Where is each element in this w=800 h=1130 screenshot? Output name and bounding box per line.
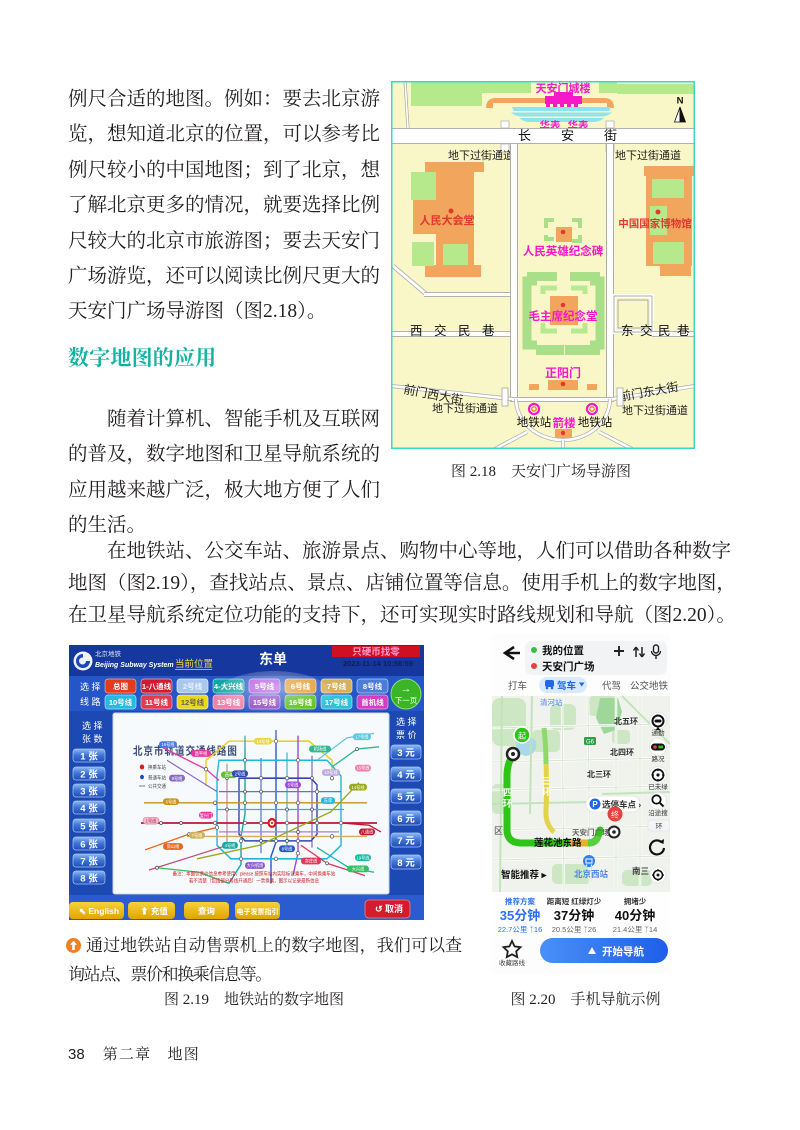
- svg-text:20.5公里 ᛉ26: 20.5公里 ᛉ26: [552, 925, 597, 934]
- svg-text:地下过街通道: 地下过街通道: [622, 403, 688, 417]
- svg-text:⬉ English: ⬉ English: [79, 906, 119, 916]
- svg-text:代驾: 代驾: [602, 681, 621, 692]
- svg-text:8号线: 8号线: [363, 681, 383, 691]
- svg-text:北四环: 北四环: [610, 747, 634, 757]
- svg-text:民: 民: [458, 324, 471, 338]
- svg-text:2 张: 2 张: [80, 769, 98, 781]
- svg-text:地铁站: 地铁站: [517, 415, 552, 429]
- svg-text:距离短 红绿灯少: 距离短 红绿灯少: [547, 896, 602, 906]
- svg-text:票 价: 票 价: [396, 730, 417, 740]
- svg-text:打车: 打车: [508, 680, 527, 692]
- svg-text:37分钟: 37分钟: [554, 908, 594, 923]
- svg-text:交: 交: [434, 323, 447, 338]
- svg-text:7号线: 7号线: [192, 832, 203, 839]
- svg-text:当前位置: 当前位置: [175, 658, 213, 670]
- svg-text:北京西站: 北京西站: [574, 869, 609, 879]
- svg-text:选 择: 选 择: [396, 716, 417, 727]
- svg-text:东单: 东单: [259, 651, 287, 667]
- svg-text:19号线: 19号线: [356, 854, 370, 861]
- svg-text:6号线: 6号线: [166, 798, 177, 805]
- svg-text:5 元: 5 元: [397, 792, 415, 803]
- svg-text:正阳门: 正阳门: [545, 365, 581, 380]
- svg-text:北京地铁: 北京地铁: [95, 649, 122, 658]
- svg-text:环: 环: [503, 799, 513, 810]
- svg-text:大兴线: 大兴线: [352, 865, 365, 872]
- svg-text:人民大会堂: 人民大会堂: [420, 213, 475, 227]
- svg-text:驾车: 驾车: [557, 680, 577, 692]
- svg-text:40分钟: 40分钟: [615, 908, 655, 923]
- svg-text:区: 区: [494, 826, 503, 836]
- svg-text:昌平线: 昌平线: [195, 750, 208, 757]
- svg-text:⬆ 充值: ⬆ 充值: [140, 906, 168, 916]
- svg-text:收藏路线: 收藏路线: [499, 958, 526, 967]
- svg-text:交: 交: [640, 323, 653, 338]
- svg-text:1号线: 1号线: [146, 817, 157, 824]
- svg-text:人民英雄纪念碑: 人民英雄纪念碑: [523, 244, 604, 258]
- svg-text:推荐方案: 推荐方案: [505, 896, 535, 906]
- svg-text:智能推荐 ▸: 智能推荐 ▸: [501, 869, 548, 881]
- svg-text:北三环: 北三环: [587, 769, 611, 779]
- svg-text:→: →: [401, 683, 412, 695]
- svg-text:6 元: 6 元: [397, 814, 415, 825]
- svg-text:开始导航: 开始导航: [602, 945, 644, 958]
- svg-text:10号线: 10号线: [109, 697, 133, 707]
- svg-text:8 元: 8 元: [397, 858, 415, 869]
- svg-text:大兴机场: 大兴机场: [247, 862, 264, 869]
- svg-text:16号线: 16号线: [161, 741, 175, 748]
- svg-text:7 张: 7 张: [80, 856, 98, 868]
- svg-text:电子发票指引: 电子发票指引: [237, 907, 279, 916]
- svg-text:1 张: 1 张: [80, 751, 98, 763]
- svg-text:8 张: 8 张: [80, 873, 98, 885]
- svg-text:只硬币找零: 只硬币找零: [352, 646, 400, 658]
- svg-text:亦庄线: 亦庄线: [305, 857, 318, 864]
- svg-text:中国国家博物馆: 中国国家博物馆: [618, 217, 692, 230]
- svg-text:通勤: 通勤: [652, 728, 666, 737]
- svg-text:查询: 查询: [198, 906, 216, 916]
- svg-text:地铁站: 地铁站: [578, 415, 613, 429]
- svg-text:公交地铁: 公交地铁: [630, 680, 669, 692]
- svg-text:天安门广场: 天安门广场: [542, 660, 595, 673]
- svg-text:东单: 东单: [324, 797, 333, 804]
- svg-text:东: 东: [621, 324, 634, 338]
- svg-text:天安门广场: 天安门广场: [572, 827, 610, 837]
- svg-text:环: 环: [542, 787, 551, 797]
- svg-text:2023-11-14 10:58:59: 2023-11-14 10:58:59: [343, 659, 413, 668]
- svg-text:我的位置: 我的位置: [542, 644, 584, 657]
- svg-text:9号线: 9号线: [172, 775, 183, 782]
- svg-text:清河站: 清河站: [540, 697, 563, 707]
- svg-text:2号线: 2号线: [183, 681, 203, 691]
- svg-text:复兴门: 复兴门: [200, 812, 213, 819]
- svg-text:房山线: 房山线: [167, 843, 180, 850]
- svg-text:北五环: 北五环: [614, 716, 638, 726]
- svg-text:已未绿: 已未绿: [648, 782, 668, 791]
- svg-text:15号线: 15号线: [356, 764, 370, 771]
- svg-text:机场线: 机场线: [314, 745, 327, 752]
- svg-text:1-八通线: 1-八通线: [142, 681, 172, 691]
- svg-text:环: 环: [656, 823, 663, 831]
- svg-text:毛主席纪念堂: 毛主席纪念堂: [529, 309, 598, 323]
- svg-text:3 元: 3 元: [397, 748, 415, 759]
- svg-text:路况: 路况: [652, 754, 666, 763]
- svg-text:起: 起: [518, 732, 526, 741]
- svg-text:八通线: 八通线: [361, 828, 374, 835]
- svg-text:N: N: [677, 96, 684, 107]
- svg-text:10号线: 10号线: [324, 769, 338, 776]
- svg-text:地下过街通道: 地下过街通道: [615, 148, 681, 162]
- svg-text:终: 终: [611, 810, 619, 820]
- svg-text:选 择: 选 择: [80, 681, 101, 692]
- svg-text:总图: 总图: [113, 681, 128, 691]
- svg-text:三: 三: [542, 776, 551, 786]
- svg-text:11号线: 11号线: [145, 697, 168, 707]
- svg-text:街: 街: [604, 128, 617, 143]
- svg-text:4 张: 4 张: [80, 803, 98, 815]
- svg-text:天安门城楼: 天安门城楼: [536, 81, 591, 95]
- svg-text:选停车点 ›: 选停车点 ›: [602, 800, 641, 810]
- svg-text:线 路: 线 路: [80, 696, 101, 707]
- svg-text:巷: 巷: [677, 324, 690, 338]
- svg-text:35分钟: 35分钟: [500, 908, 540, 923]
- svg-text:南三: 南三: [632, 866, 649, 876]
- svg-text:5 张: 5 张: [80, 821, 98, 833]
- svg-text:21.4公里 ᛉ14: 21.4公里 ᛉ14: [613, 925, 658, 934]
- svg-text:地下过街通道: 地下过街通道: [432, 401, 498, 415]
- svg-text:沿途搜: 沿途搜: [648, 808, 668, 817]
- svg-text:拥堵少: 拥堵少: [624, 896, 647, 906]
- svg-text:4 元: 4 元: [397, 770, 415, 781]
- svg-text:民: 民: [658, 324, 671, 338]
- svg-text:Beijing Subway System: Beijing Subway System: [95, 662, 174, 669]
- svg-text:5号线: 5号线: [288, 781, 299, 788]
- svg-text:箭楼: 箭楼: [553, 416, 576, 430]
- svg-text:7 元: 7 元: [397, 836, 415, 847]
- svg-text:地下过街通道: 地下过街通道: [448, 148, 514, 162]
- svg-text:P: P: [592, 800, 598, 809]
- svg-text:巷: 巷: [482, 324, 495, 338]
- svg-text:西: 西: [410, 324, 423, 338]
- svg-text:14号线: 14号线: [351, 784, 365, 791]
- svg-text:长: 长: [518, 128, 531, 143]
- svg-text:张 数: 张 数: [82, 733, 103, 744]
- svg-text:G6: G6: [586, 740, 595, 746]
- svg-text:首机线: 首机线: [361, 697, 384, 707]
- svg-text:22.7公里 ᛉ16: 22.7公里 ᛉ16: [498, 925, 543, 934]
- svg-text:2号线: 2号线: [235, 770, 246, 777]
- svg-text:4号线: 4号线: [225, 842, 236, 849]
- svg-text:莲花池东路: 莲花池东路: [534, 837, 582, 849]
- svg-text:安: 安: [561, 128, 574, 143]
- svg-text:8号线: 8号线: [282, 845, 293, 852]
- svg-text:选 择: 选 择: [82, 720, 103, 731]
- svg-text:12号线: 12号线: [181, 697, 205, 707]
- svg-text:四: 四: [503, 788, 513, 799]
- svg-text:6 张: 6 张: [80, 839, 98, 851]
- svg-text:下一页: 下一页: [395, 696, 418, 705]
- svg-text:3 张: 3 张: [80, 786, 98, 798]
- svg-text:17号线: 17号线: [355, 733, 369, 740]
- svg-text:↺ 取消: ↺ 取消: [375, 903, 403, 914]
